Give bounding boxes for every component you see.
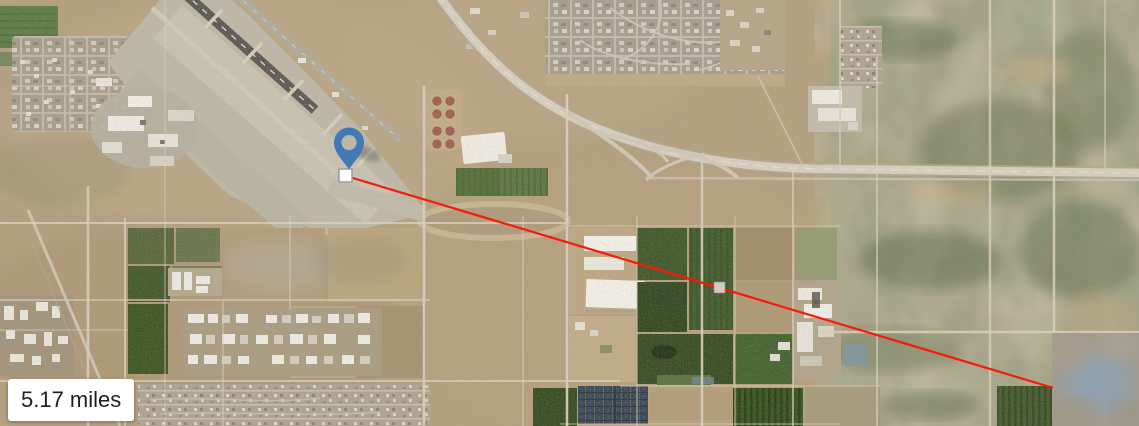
- measurement-start-marker[interactable]: [339, 169, 352, 182]
- map-viewport[interactable]: 5.17 miles: [0, 0, 1139, 426]
- measurement-midpoint-handle[interactable]: [714, 282, 725, 293]
- satellite-map[interactable]: [0, 0, 1139, 426]
- low-resolution-tile: [1044, 333, 1139, 426]
- distance-label: 5.17 miles: [8, 379, 134, 421]
